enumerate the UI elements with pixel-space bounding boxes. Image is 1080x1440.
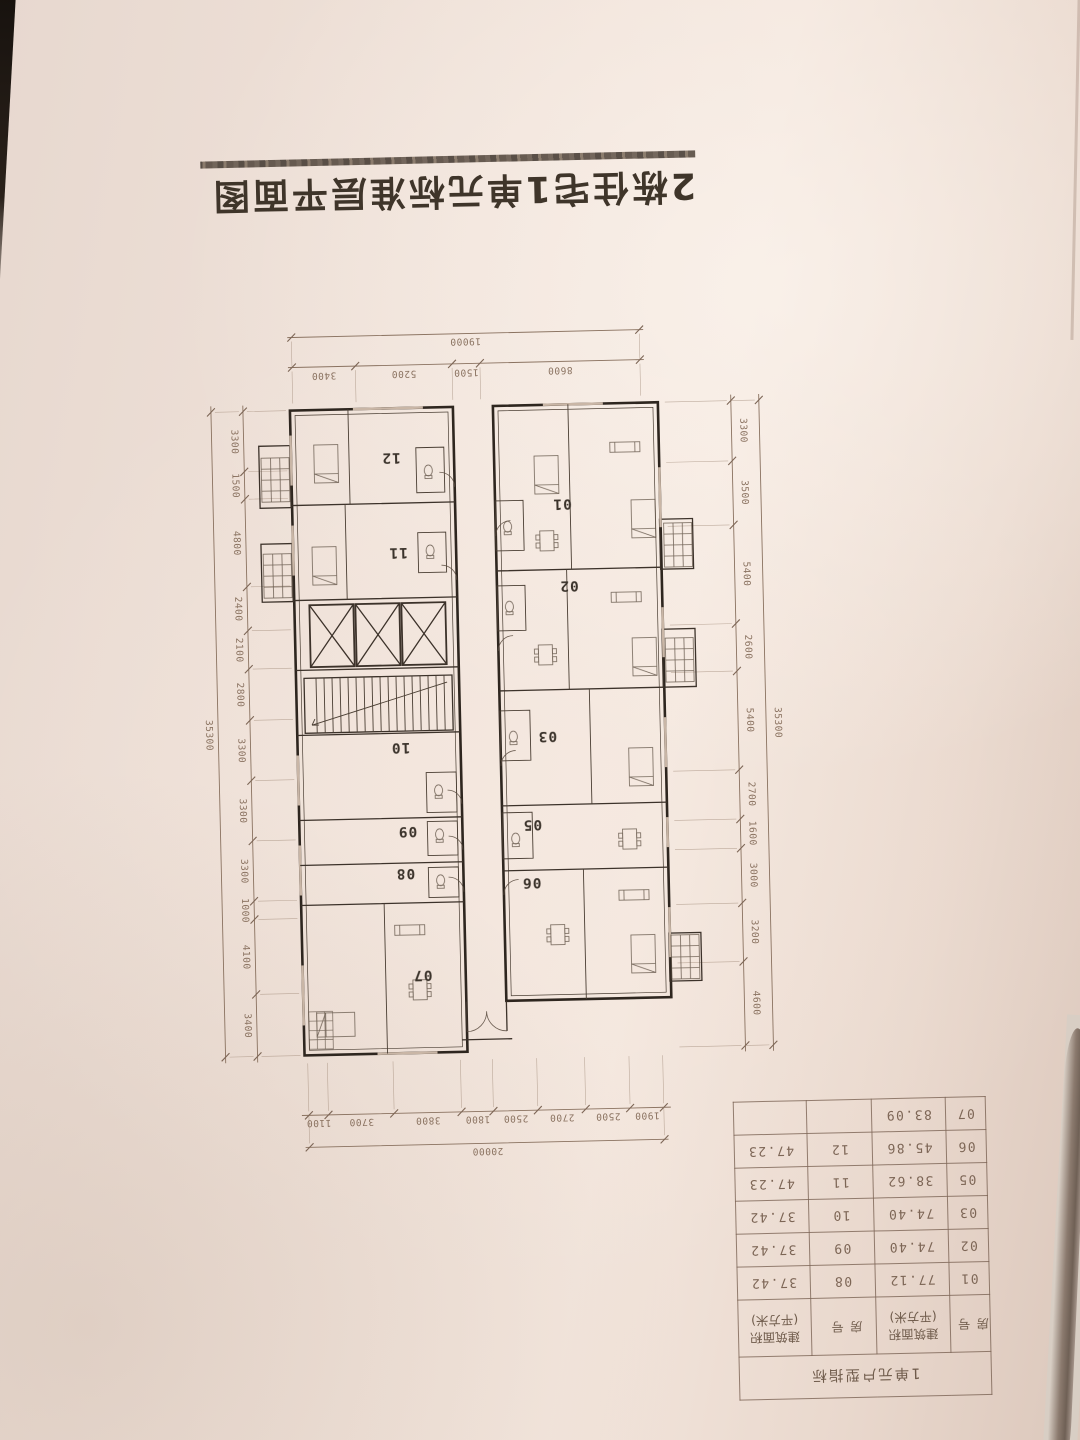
page-edge-line <box>1070 0 1080 340</box>
unit-number: 08 <box>396 865 416 881</box>
dim-overall: 35300 <box>203 720 215 751</box>
photo-frame: 1单元户型指标 房号 建筑面积(平方米) 房号 建筑面积(平方米) 0177.1… <box>0 0 1080 1440</box>
elevator-shafts <box>309 602 446 667</box>
dim-label: 1000 <box>239 898 251 923</box>
col-header-area-1: 建筑面积(平方米) <box>876 1295 951 1354</box>
dim-label: 3400 <box>311 370 336 382</box>
dim-overall: 20000 <box>472 1145 503 1157</box>
dim-label: 3300 <box>228 429 240 454</box>
dim-label: 5400 <box>744 708 756 733</box>
dim-label: 3800 <box>415 1114 440 1126</box>
dim-label: 3300 <box>238 859 250 884</box>
unit-number: 01 <box>552 495 572 511</box>
unit-number: 05 <box>522 816 542 832</box>
dim-label: 2500 <box>596 1110 621 1122</box>
dim-label: 3500 <box>739 480 751 505</box>
table-row: 0177.120837.42 <box>737 1261 990 1300</box>
dim-label: 1500 <box>229 473 241 498</box>
unit-number: 10 <box>391 739 411 755</box>
dim-label: 4100 <box>240 945 252 970</box>
dim-label: 3300 <box>237 799 249 824</box>
table-row: 0274.400937.42 <box>736 1228 989 1267</box>
table-header-row: 房号 建筑面积(平方米) 房号 建筑面积(平方米) <box>738 1294 991 1357</box>
dim-label: 1100 <box>306 1117 331 1129</box>
unit-number: 03 <box>537 728 557 744</box>
drawing-title-block: 2栋住宅1单元标准层平面图 <box>195 150 696 225</box>
table-row: 0374.401037.42 <box>735 1195 988 1234</box>
dim-label: 1900 <box>635 1109 660 1121</box>
dim-label: 2100 <box>233 638 245 663</box>
dim-label: 2700 <box>549 1111 574 1123</box>
floor-plan-drawing: 1900 2500 2700 2500 1800 3800 3700 1100 … <box>180 284 820 1198</box>
dim-label: 1600 <box>746 821 758 846</box>
drawing-title: 2栋住宅1单元标准层平面图 <box>196 162 697 225</box>
unit-number: 06 <box>522 874 542 890</box>
dim-overall: 35300 <box>772 707 784 738</box>
dim-label: 1800 <box>465 1113 490 1125</box>
dim-label: 2500 <box>503 1112 528 1124</box>
stair-core <box>304 675 453 733</box>
unit-number: 07 <box>413 967 433 983</box>
dim-label: 5400 <box>740 561 752 586</box>
dim-label: 2800 <box>234 682 246 707</box>
dim-label: 3400 <box>242 1013 254 1038</box>
unit-number: 09 <box>398 823 418 839</box>
dim-label: 3000 <box>747 863 759 888</box>
door-swings <box>439 471 522 1032</box>
dim-label: 5200 <box>391 368 416 380</box>
unit-number: 11 <box>388 544 408 560</box>
sheet-content-rotated: 1单元户型指标 房号 建筑面积(平方米) 房号 建筑面积(平方米) 0177.1… <box>0 0 1080 1440</box>
dim-label: 8600 <box>547 364 572 376</box>
dim-label: 2600 <box>742 634 754 659</box>
dim-label: 4600 <box>750 991 762 1016</box>
dim-label: 3200 <box>749 919 761 944</box>
dim-overall: 19000 <box>450 335 481 347</box>
col-header-area-2: 建筑面积(平方米) <box>738 1299 812 1358</box>
photo-of-floor-plan-sheet: { "orientation": "page photographed rota… <box>0 0 1080 1440</box>
dim-label: 4800 <box>231 531 243 556</box>
room-partitions <box>290 402 673 1055</box>
furniture <box>261 437 704 1051</box>
table-title: 1单元户型指标 <box>739 1351 992 1400</box>
unit-number: 12 <box>381 449 401 465</box>
col-header-room-1: 房号 <box>950 1294 991 1352</box>
dim-label: 3300 <box>235 738 247 763</box>
dim-label: 3300 <box>737 418 749 443</box>
dim-label: 3700 <box>349 1116 374 1128</box>
dim-label: 1500 <box>454 366 479 378</box>
unit-number: 02 <box>559 577 579 593</box>
col-header-room-2: 房号 <box>811 1297 877 1355</box>
dim-label: 2700 <box>745 782 757 807</box>
dim-label: 2400 <box>232 597 244 622</box>
